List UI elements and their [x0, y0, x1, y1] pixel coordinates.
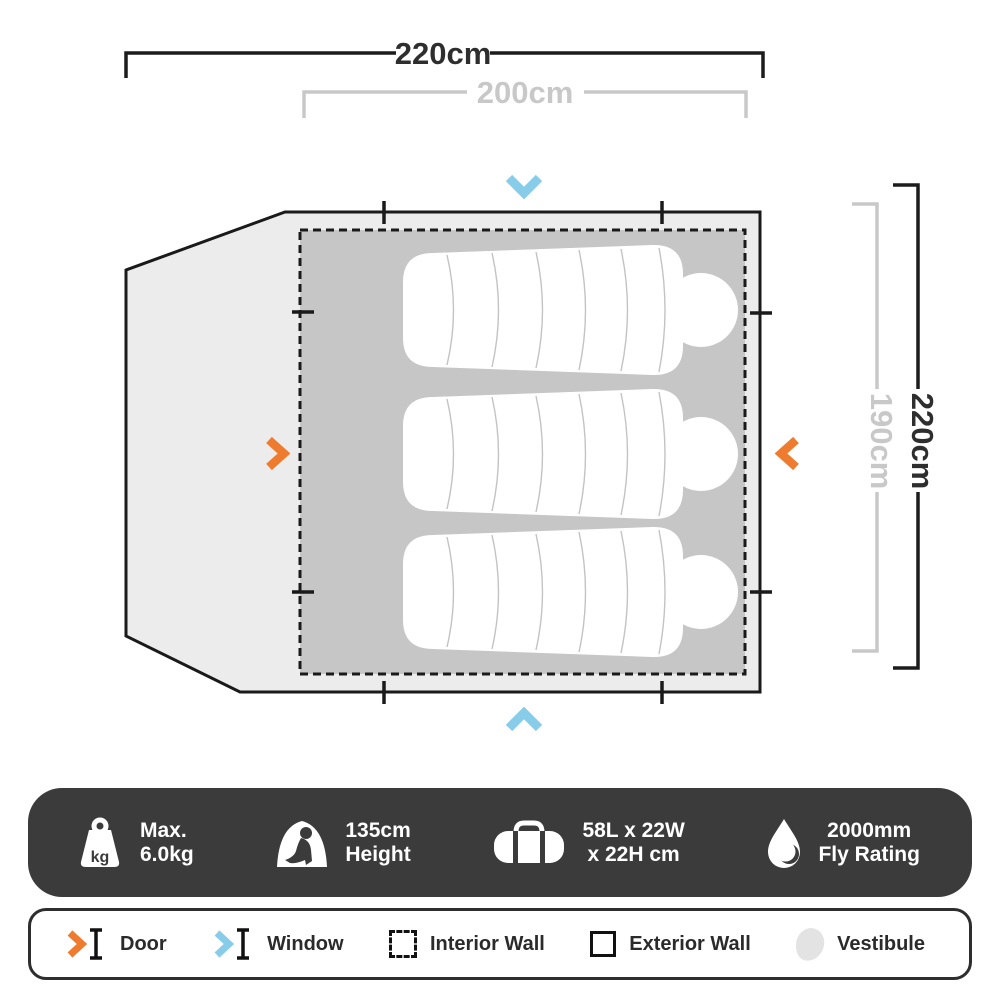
spec-text-weight: Max.6.0kg [140, 819, 194, 867]
legend-label-interior-wall: Interior Wall [430, 933, 545, 956]
door-chevron-right-icon [781, 440, 796, 467]
weight-kg-icon: kg [76, 817, 124, 869]
spec-text-height: 135cmHeight [345, 819, 410, 867]
spec-item-fly-rating: 2000mmFly Rating [766, 817, 920, 869]
tent-floorplan-infographic: 220cm 200cm 220cm 190cm kg Max.6.0kg [0, 0, 1000, 1000]
peak-height-icon [275, 818, 329, 868]
legend-label-exterior-wall: Exterior Wall [629, 933, 751, 956]
dimension-top-outer-label: 220cm [395, 36, 492, 71]
exterior-wall-icon [590, 931, 616, 957]
window-chevron-bottom-icon [509, 713, 539, 728]
window-icon [212, 926, 254, 962]
dimension-right-inner: 190cm [852, 204, 899, 651]
svg-text:kg: kg [91, 849, 110, 866]
legend-item-vestibule: Vestibule [796, 928, 925, 961]
legend-item-window: Window [212, 926, 343, 962]
legend-bar: Door Window Interior Wall Exterior Wall … [28, 908, 972, 980]
legend-item-interior-wall: Interior Wall [389, 930, 545, 958]
spec-text-packed-size: 58L x 22Wx 22H cm [582, 819, 684, 867]
fly-rating-icon [766, 817, 802, 869]
legend-item-door: Door [65, 926, 167, 962]
interior-wall-icon [389, 930, 417, 958]
dimension-top-inner-label: 200cm [477, 75, 574, 110]
legend-item-exterior-wall: Exterior Wall [590, 931, 751, 957]
dimension-right-outer-label: 220cm [905, 393, 940, 490]
legend-label-window: Window [267, 933, 343, 956]
spec-bar: kg Max.6.0kg 135cmHeight 58L x 22Wx 22H [28, 788, 972, 897]
vestibule-icon [794, 926, 826, 963]
legend-label-vestibule: Vestibule [837, 933, 925, 956]
spec-item-packed-size: 58L x 22Wx 22H cm [492, 819, 684, 867]
window-chevron-top-icon [509, 178, 539, 193]
door-icon [65, 926, 107, 962]
spec-item-weight: kg Max.6.0kg [76, 817, 194, 869]
spec-text-fly-rating: 2000mmFly Rating [818, 819, 920, 867]
dimension-top-inner: 200cm [304, 75, 746, 118]
dimension-right-outer: 220cm [893, 185, 940, 668]
dimension-right-inner-label: 190cm [864, 393, 899, 490]
packed-size-icon [492, 820, 566, 866]
dimension-top-outer: 220cm [126, 36, 763, 78]
legend-label-door: Door [120, 933, 167, 956]
floorplan-diagram: 220cm 200cm 220cm 190cm [0, 0, 1000, 780]
sleeping-bags [403, 245, 738, 657]
spec-item-height: 135cmHeight [275, 818, 410, 868]
